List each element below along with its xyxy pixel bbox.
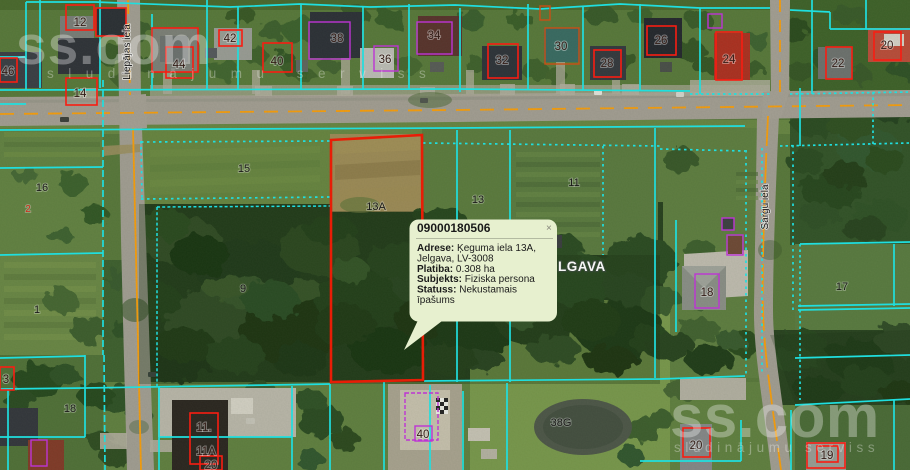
svg-text:30: 30 [555, 41, 568, 53]
svg-text:18: 18 [701, 287, 714, 299]
svg-text:Subjekts: Fiziska persona: Subjekts: Fiziska persona [417, 274, 535, 285]
svg-text:38: 38 [331, 33, 344, 45]
svg-text:9: 9 [240, 283, 246, 295]
svg-text:38G: 38G [551, 417, 572, 429]
svg-text:13A: 13A [366, 201, 386, 213]
svg-text:09000180506: 09000180506 [417, 221, 491, 235]
svg-text:15: 15 [238, 163, 250, 175]
svg-text:Sargu iela: Sargu iela [760, 184, 771, 229]
svg-text:LGAVA: LGAVA [558, 259, 606, 274]
svg-text:18: 18 [64, 403, 76, 415]
svg-text:20: 20 [881, 40, 894, 52]
svg-text:×: × [546, 223, 552, 234]
svg-text:2: 2 [25, 204, 31, 215]
svg-text:42: 42 [224, 33, 237, 45]
svg-text:11.: 11. [196, 422, 211, 434]
svg-text:14: 14 [74, 88, 87, 100]
svg-text:34: 34 [428, 30, 441, 42]
svg-text:20: 20 [205, 460, 218, 470]
svg-text:24: 24 [723, 54, 736, 66]
svg-text:26: 26 [655, 35, 668, 47]
svg-text:Adrese: Ķeguma iela 13A,: Adrese: Ķeguma iela 13A, [417, 243, 536, 254]
svg-text:16: 16 [36, 182, 48, 194]
svg-text:īpašums: īpašums [417, 295, 455, 306]
svg-text:Statuss: Nekustamais: Statuss: Nekustamais [417, 285, 517, 296]
svg-text:36: 36 [379, 54, 392, 66]
svg-text:40: 40 [417, 429, 430, 441]
svg-text:46: 46 [2, 66, 15, 78]
svg-text:sludinājumu serviss: sludinājumu serviss [47, 66, 440, 81]
svg-text:13: 13 [472, 194, 484, 206]
svg-text:1: 1 [34, 304, 40, 316]
svg-text:3: 3 [3, 374, 9, 386]
svg-text:32: 32 [496, 55, 509, 67]
svg-text:17: 17 [836, 281, 848, 293]
svg-text:11A: 11A [196, 446, 216, 458]
svg-text:sludinājumu serviss: sludinājumu serviss [674, 440, 879, 455]
svg-text:11: 11 [568, 177, 579, 189]
svg-text:Platiba: 0.308 ha: Platiba: 0.308 ha [417, 264, 495, 275]
svg-text:22: 22 [832, 58, 845, 70]
svg-text:28: 28 [601, 58, 614, 70]
svg-text:Jelgava, LV-3008: Jelgava, LV-3008 [417, 253, 494, 264]
